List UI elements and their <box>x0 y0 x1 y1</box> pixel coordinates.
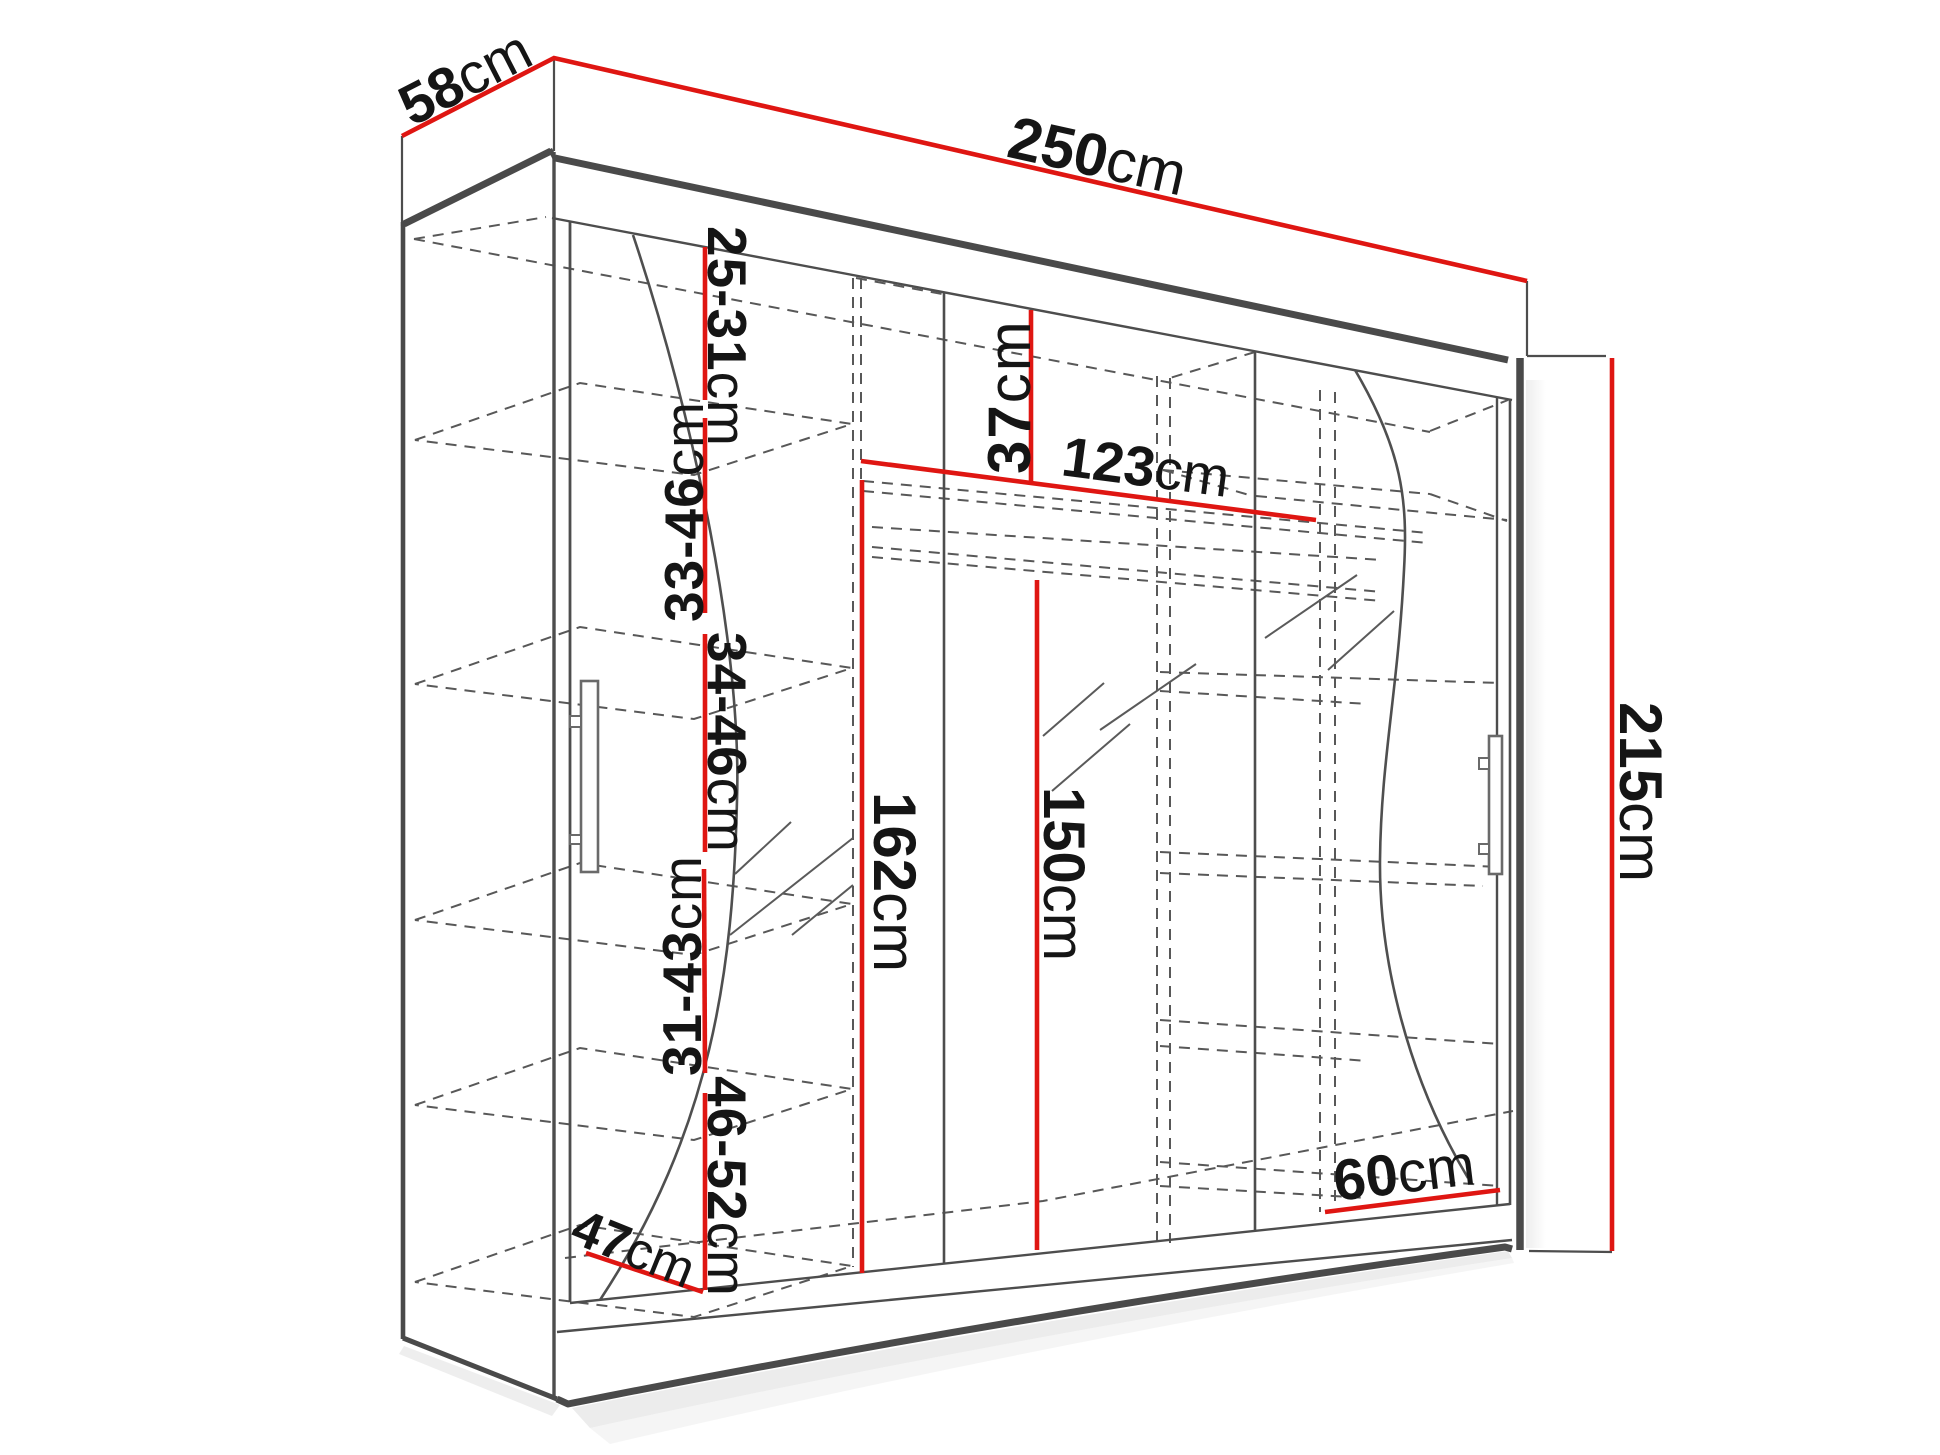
svg-text:162cm: 162cm <box>861 792 928 972</box>
svg-text:31-43cm: 31-43cm <box>651 855 713 1076</box>
svg-text:46-52cm: 46-52cm <box>696 1076 758 1297</box>
svg-text:34-46cm: 34-46cm <box>696 632 758 853</box>
svg-text:215cm: 215cm <box>1607 702 1674 882</box>
svg-text:58cm: 58cm <box>389 18 542 139</box>
svg-text:33-46cm: 33-46cm <box>653 401 715 622</box>
svg-text:150cm: 150cm <box>1031 787 1096 961</box>
svg-text:37cm: 37cm <box>976 319 1043 474</box>
svg-text:47cm: 47cm <box>564 1198 704 1299</box>
svg-text:250cm: 250cm <box>1002 104 1192 209</box>
svg-text:123cm: 123cm <box>1058 424 1233 508</box>
svg-text:60cm: 60cm <box>1330 1132 1479 1214</box>
